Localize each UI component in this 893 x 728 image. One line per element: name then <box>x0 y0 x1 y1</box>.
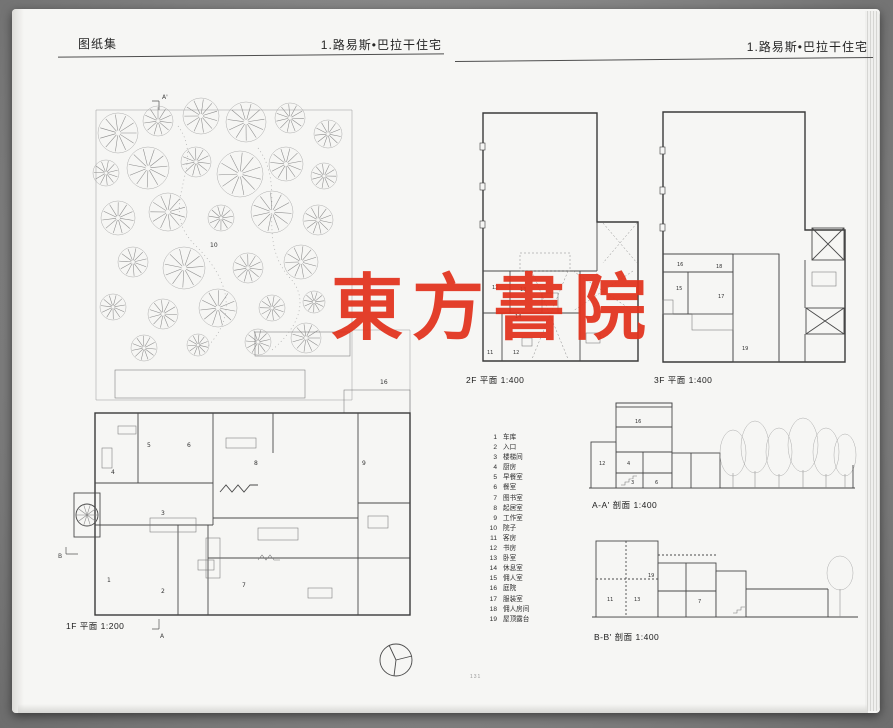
room-number: 4 <box>111 469 115 476</box>
room-number: 3 <box>631 480 634 486</box>
paved-terrace <box>115 370 305 398</box>
fixtures-2f <box>522 333 600 346</box>
section-aa-drawing: 16 12 4 3 6 <box>583 395 863 497</box>
legend-item: 9工作室 <box>488 514 529 524</box>
room-number: 7 <box>698 599 701 605</box>
legend-item: 14休息室 <box>488 564 529 574</box>
stair-2f <box>542 293 558 313</box>
room-number: 5 <box>147 442 151 449</box>
legend-item: 3楼梯间 <box>488 453 529 463</box>
fixtures-3f <box>812 272 836 286</box>
legend-item: 18佣人房间 <box>488 605 529 615</box>
room-number: 7 <box>242 582 246 589</box>
interior-walls-2f <box>483 222 597 361</box>
room-number: 17 <box>718 294 724 300</box>
plan-1f-drawing: A' 1 2 3 4 5 6 7 8 9 10 1 <box>58 88 443 688</box>
legend-item: 4厨房 <box>488 463 529 473</box>
paved-terrace <box>344 390 410 413</box>
void-dashed <box>520 253 570 271</box>
interior-walls-3f <box>663 254 805 362</box>
legend-item: 2入口 <box>488 443 529 453</box>
caption-1f: 1F 平面 1:200 <box>66 620 124 632</box>
room-number: 12 <box>492 285 498 291</box>
running-head-title-left: 1.路易斯•巴拉干住宅 <box>230 36 442 53</box>
legend-item: 16庭院 <box>488 584 529 594</box>
hatch-3f <box>663 300 673 314</box>
section-marker-b: B <box>58 553 62 560</box>
page-number: 131 <box>470 674 481 680</box>
room-number: 16 <box>677 262 683 268</box>
section-marker-a: A <box>160 633 165 640</box>
room-number: 9 <box>362 460 366 467</box>
room-number: 4 <box>627 461 630 467</box>
room-number: 16 <box>635 419 641 425</box>
garden-trees <box>93 98 342 361</box>
section-tree <box>827 556 853 617</box>
legend-item: 13卧室 <box>488 554 529 564</box>
room-number: 10 <box>210 242 218 249</box>
fixtures-1f <box>102 426 388 598</box>
room-number: 11 <box>487 350 493 356</box>
room-number: 13 <box>520 287 526 293</box>
room-number: 14 <box>515 314 521 320</box>
legend-item: 11客房 <box>488 534 529 544</box>
roof-terrace-tiles <box>733 254 779 362</box>
house-outline-1f <box>95 413 410 615</box>
legend-item: 1车库 <box>488 433 529 443</box>
page-edge-bottom <box>18 704 868 713</box>
double-height-void <box>532 223 637 359</box>
room-number: 6 <box>187 442 191 449</box>
room-number: 19 <box>648 573 654 579</box>
section-bb-drawing: 19 11 13 7 <box>588 527 863 625</box>
running-head-title-right: 1.路易斯•巴拉干住宅 <box>640 38 868 55</box>
room-number: 18 <box>716 264 722 270</box>
room-number: 15 <box>676 286 682 292</box>
room-number: 8 <box>254 460 258 467</box>
building-section-bb <box>596 541 828 617</box>
room-number: 1 <box>107 577 111 584</box>
section-marker-a-prime: A' <box>162 94 168 101</box>
garden-boundary <box>96 110 410 413</box>
spiral-stair <box>74 493 100 537</box>
legend-item: 7图书室 <box>488 494 529 504</box>
stair-3f <box>692 314 733 330</box>
room-numbers-3f: 15 18 17 16 19 <box>676 262 748 352</box>
room-number: 3 <box>161 510 165 517</box>
room-number: 11 <box>607 597 613 603</box>
room-number: 12 <box>513 350 519 356</box>
caption-aa: A-A' 剖面 1:400 <box>592 499 657 511</box>
legend-item: 10院子 <box>488 524 529 534</box>
room-number: 16 <box>380 379 388 386</box>
legend-item: 19屋顶露台 <box>488 615 529 625</box>
page-edge-stack-right <box>865 11 880 711</box>
caption-2f: 2F 平面 1:400 <box>466 374 524 386</box>
interior-walls-1f <box>95 413 410 615</box>
room-number: 12 <box>599 461 605 467</box>
legend-item: 5早餐室 <box>488 473 529 483</box>
caption-bb: B-B' 剖面 1:400 <box>594 631 659 643</box>
caption-3f: 3F 平面 1:400 <box>654 374 712 386</box>
room-number: 13 <box>634 597 640 603</box>
legend-list: 1车库2入口3楼梯间4厨房5早餐室6餐室7图书室8起居室9工作室10院子11客房… <box>488 433 529 625</box>
stair-1f <box>258 528 298 540</box>
skylights <box>806 228 844 334</box>
room-number: 2 <box>161 588 165 595</box>
legend-item: 15佣人室 <box>488 574 529 584</box>
legend-item: 8起居室 <box>488 504 529 514</box>
plan-2f-drawing: 12 13 14 11 12 <box>462 103 647 368</box>
room-number: 19 <box>742 346 748 352</box>
room-numbers-2f: 12 13 14 11 12 <box>487 285 526 356</box>
zigzag-symbol <box>258 555 280 560</box>
book-spread-photo: { "watermark": { "text": "東方書院", "color"… <box>0 0 893 728</box>
legend-item: 6餐室 <box>488 483 529 493</box>
room-numbers-1f: 1 2 3 4 5 6 7 8 9 10 16 <box>107 242 388 595</box>
running-head-section: 图纸集 <box>78 35 117 52</box>
page-edge-left <box>12 9 24 713</box>
garden-section-trees <box>720 418 856 488</box>
north-arrow-icon <box>380 644 412 676</box>
building-section-aa <box>591 403 720 488</box>
zigzag-symbol <box>220 485 258 492</box>
legend-item: 12书房 <box>488 544 529 554</box>
legend-item: 17服装室 <box>488 595 529 605</box>
plan-3f-drawing: 15 18 17 16 19 <box>652 102 852 372</box>
room-number: 6 <box>655 480 658 486</box>
